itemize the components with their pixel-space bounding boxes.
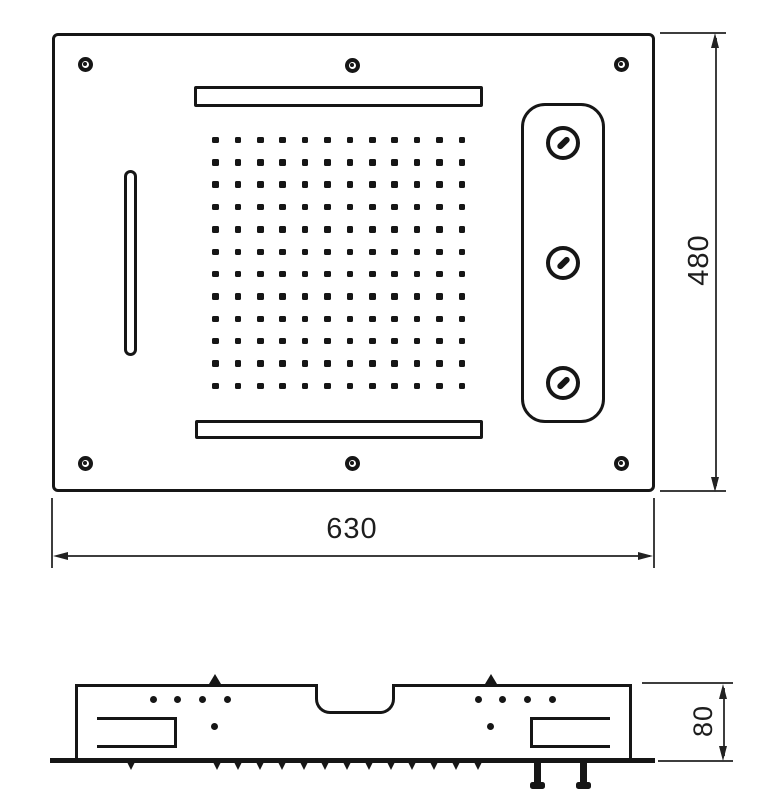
waterfall-slot-top <box>194 86 483 107</box>
rain-nozzle <box>279 159 286 166</box>
screw-pin <box>350 63 354 67</box>
rain-nozzle <box>347 159 354 166</box>
rain-nozzle <box>391 204 398 211</box>
side-hole <box>211 723 218 730</box>
rain-nozzle <box>302 271 309 278</box>
screw-pin <box>83 62 87 66</box>
rain-nozzle <box>459 204 466 211</box>
rain-nozzle <box>257 204 264 211</box>
inlet-peg-foot <box>530 782 545 789</box>
left-mist-slot <box>124 170 137 356</box>
nozzle-tooth <box>452 762 460 770</box>
rain-nozzle <box>391 271 398 278</box>
rain-nozzle <box>436 338 443 345</box>
side-hole <box>224 696 231 703</box>
screw-pin <box>619 62 623 66</box>
inlet-peg-stem <box>534 762 541 783</box>
rain-nozzle <box>347 249 354 256</box>
rain-nozzle <box>391 137 398 144</box>
nozzle-tooth <box>127 762 135 770</box>
rain-nozzle <box>436 383 443 390</box>
nozzle-tooth <box>474 762 482 770</box>
rain-nozzle <box>324 383 331 390</box>
rain-nozzle <box>212 249 219 256</box>
rain-nozzle <box>369 249 376 256</box>
screw-pin <box>83 461 87 465</box>
rain-nozzle <box>347 137 354 144</box>
rain-nozzle <box>436 293 443 300</box>
rain-nozzle <box>391 293 398 300</box>
rain-nozzle <box>279 316 286 323</box>
side-hole <box>549 696 556 703</box>
jet-handle <box>556 376 571 391</box>
nozzle-tooth <box>321 762 329 770</box>
inlet-peg-stem <box>580 762 587 783</box>
rain-nozzle <box>257 159 264 166</box>
rain-nozzle <box>235 204 242 211</box>
rain-nozzle <box>324 159 331 166</box>
nozzle-tooth <box>213 762 221 770</box>
rain-nozzle <box>459 137 466 144</box>
rain-nozzle <box>235 360 242 367</box>
rain-nozzle <box>391 383 398 390</box>
rain-nozzle <box>414 271 421 278</box>
rain-nozzle <box>212 137 219 144</box>
rain-nozzle <box>324 293 331 300</box>
rain-nozzle <box>257 226 264 233</box>
rain-nozzle <box>414 293 421 300</box>
screw-hole <box>78 57 93 72</box>
dim-630-line <box>57 555 650 557</box>
rain-nozzle <box>369 204 376 211</box>
rain-nozzle <box>279 293 286 300</box>
rain-nozzle <box>414 316 421 323</box>
rain-nozzle <box>414 226 421 233</box>
rain-nozzle <box>391 226 398 233</box>
side-hole <box>199 696 206 703</box>
rain-nozzle <box>369 383 376 390</box>
rain-nozzle <box>257 383 264 390</box>
rain-nozzle <box>302 293 309 300</box>
rain-nozzle <box>436 204 443 211</box>
side-view-left-bracket <box>97 717 177 748</box>
rain-nozzle <box>279 360 286 367</box>
rain-nozzle <box>347 360 354 367</box>
side-hole <box>487 723 494 730</box>
rain-nozzle <box>369 293 376 300</box>
rain-nozzle <box>347 204 354 211</box>
screw-hole <box>78 456 93 471</box>
rain-nozzle <box>459 226 466 233</box>
rain-nozzle <box>369 316 376 323</box>
screw-hole <box>614 456 629 471</box>
dim-label-height-480: 480 <box>679 220 719 300</box>
rain-nozzle <box>459 383 466 390</box>
rain-nozzle <box>302 204 309 211</box>
rain-nozzle <box>235 271 242 278</box>
rain-nozzle <box>257 338 264 345</box>
screw-hole <box>345 456 360 471</box>
rain-nozzle <box>212 159 219 166</box>
rain-nozzle <box>347 181 354 188</box>
rain-nozzle <box>459 338 466 345</box>
rain-nozzle <box>459 249 466 256</box>
rain-nozzle <box>414 159 421 166</box>
rain-nozzle <box>391 360 398 367</box>
rain-nozzle <box>369 137 376 144</box>
rain-nozzle <box>212 181 219 188</box>
rain-nozzle <box>212 204 219 211</box>
rain-nozzle <box>459 293 466 300</box>
side-view-flange <box>50 758 655 763</box>
rain-nozzle <box>279 137 286 144</box>
rain-nozzle <box>235 226 242 233</box>
side-hole <box>499 696 506 703</box>
rain-nozzle <box>235 159 242 166</box>
rain-nozzle <box>302 159 309 166</box>
rain-nozzle <box>414 360 421 367</box>
rain-nozzle <box>302 360 309 367</box>
rain-nozzle <box>369 360 376 367</box>
side-hole <box>174 696 181 703</box>
rain-nozzle <box>212 383 219 390</box>
rain-nozzle <box>212 338 219 345</box>
rain-nozzle <box>459 159 466 166</box>
screw-hole <box>345 58 360 73</box>
rain-nozzle <box>279 204 286 211</box>
side-view-right-bracket <box>530 717 610 748</box>
rain-nozzle <box>212 293 219 300</box>
rain-nozzle <box>347 383 354 390</box>
rain-nozzle <box>257 137 264 144</box>
rain-nozzle <box>436 316 443 323</box>
nozzle-tooth <box>256 762 264 770</box>
rain-nozzle <box>459 360 466 367</box>
rain-nozzle <box>324 316 331 323</box>
rain-nozzle <box>302 383 309 390</box>
rain-nozzle <box>279 383 286 390</box>
nozzle-tooth <box>343 762 351 770</box>
body-jet <box>546 246 580 280</box>
rain-nozzle <box>347 338 354 345</box>
rain-nozzle <box>391 338 398 345</box>
rain-nozzle <box>235 181 242 188</box>
nozzle-tooth <box>365 762 373 770</box>
side-hole <box>475 696 482 703</box>
rain-nozzle <box>302 181 309 188</box>
rain-nozzle <box>324 271 331 278</box>
rain-nozzle <box>436 226 443 233</box>
rain-nozzle <box>235 137 242 144</box>
rain-nozzle <box>212 271 219 278</box>
rain-nozzle <box>459 271 466 278</box>
body-jet <box>546 126 580 160</box>
screw-pin <box>350 461 354 465</box>
rain-nozzle <box>436 159 443 166</box>
rain-nozzle <box>369 338 376 345</box>
rain-nozzle <box>302 249 309 256</box>
jet-handle <box>556 136 571 151</box>
dim-630-arrow-right <box>638 552 653 560</box>
mount-bump <box>485 674 497 684</box>
rain-nozzle <box>436 249 443 256</box>
rain-nozzle <box>459 316 466 323</box>
rain-nozzle <box>324 181 331 188</box>
rain-nozzle <box>369 226 376 233</box>
rain-nozzle <box>347 226 354 233</box>
rain-nozzle <box>279 249 286 256</box>
nozzle-tooth <box>300 762 308 770</box>
screw-pin <box>619 461 623 465</box>
side-hole <box>150 696 157 703</box>
rain-nozzle <box>279 181 286 188</box>
rain-nozzle <box>324 137 331 144</box>
jet-handle <box>556 256 571 271</box>
rain-nozzle <box>324 204 331 211</box>
rain-nozzle <box>414 383 421 390</box>
waterfall-slot-bottom <box>195 420 483 439</box>
rain-nozzle <box>257 249 264 256</box>
rain-nozzle <box>459 181 466 188</box>
rain-nozzle <box>347 316 354 323</box>
rain-nozzle <box>257 181 264 188</box>
dim-480-arrow-bottom <box>711 477 719 492</box>
rain-nozzle <box>302 226 309 233</box>
rain-nozzle <box>212 316 219 323</box>
rain-nozzle <box>436 137 443 144</box>
rain-nozzle <box>302 338 309 345</box>
rain-nozzle <box>391 316 398 323</box>
dim-630-ext-right <box>653 498 655 568</box>
rain-nozzle <box>436 271 443 278</box>
rain-nozzle <box>414 181 421 188</box>
rain-nozzle <box>257 360 264 367</box>
rain-nozzle <box>324 360 331 367</box>
rain-nozzle <box>302 316 309 323</box>
rain-nozzle <box>347 271 354 278</box>
rain-nozzle <box>391 249 398 256</box>
rain-nozzle <box>279 271 286 278</box>
rain-nozzle <box>414 204 421 211</box>
nozzle-tooth <box>387 762 395 770</box>
rain-nozzle <box>347 293 354 300</box>
screw-hole <box>614 57 629 72</box>
nozzle-tooth <box>278 762 286 770</box>
rain-nozzle <box>212 226 219 233</box>
rain-nozzle <box>369 271 376 278</box>
rain-nozzle <box>414 338 421 345</box>
nozzle-tooth <box>234 762 242 770</box>
rain-nozzle <box>235 338 242 345</box>
rain-nozzle <box>257 316 264 323</box>
inlet-peg-foot <box>576 782 591 789</box>
nozzle-tooth <box>408 762 416 770</box>
dim-480-arrow-top <box>711 33 719 48</box>
rain-nozzle <box>369 159 376 166</box>
rain-nozzle <box>414 137 421 144</box>
dim-label-depth-80: 80 <box>683 691 723 751</box>
side-view-top-notch <box>315 684 395 714</box>
rain-nozzle <box>414 249 421 256</box>
side-hole <box>524 696 531 703</box>
rain-nozzle <box>391 181 398 188</box>
rain-nozzle <box>212 360 219 367</box>
rain-nozzle <box>257 271 264 278</box>
dim-630-arrow-left <box>53 552 68 560</box>
rain-nozzle <box>279 338 286 345</box>
rain-nozzle <box>235 383 242 390</box>
mount-bump <box>209 674 221 684</box>
rain-nozzle <box>279 226 286 233</box>
dim-label-width-630: 630 <box>302 511 402 547</box>
rain-nozzle <box>235 316 242 323</box>
rain-nozzle <box>235 293 242 300</box>
rain-nozzle <box>324 249 331 256</box>
rain-nozzle <box>324 226 331 233</box>
body-jet <box>546 366 580 400</box>
rain-nozzle <box>302 137 309 144</box>
rain-nozzle <box>436 181 443 188</box>
rain-nozzle <box>391 159 398 166</box>
rain-nozzle <box>324 338 331 345</box>
nozzle-tooth <box>430 762 438 770</box>
rain-nozzle <box>436 360 443 367</box>
rain-nozzle <box>235 249 242 256</box>
rain-nozzle <box>257 293 264 300</box>
rain-nozzle <box>369 181 376 188</box>
technical-drawing-canvas: 480 630 80 <box>0 0 766 800</box>
